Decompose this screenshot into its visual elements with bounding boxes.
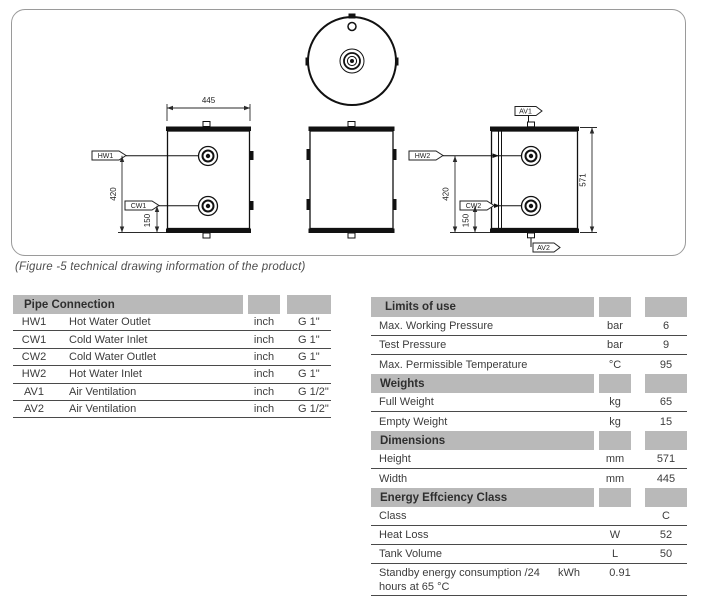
- table-row: Heat Loss W 52: [371, 526, 687, 545]
- value-cell: G 1/2": [287, 403, 331, 415]
- value-cell: 0.91: [599, 566, 641, 580]
- pipe-fitting: [522, 147, 541, 166]
- label-cell: Class: [371, 510, 599, 522]
- value-cell: 571: [645, 453, 687, 465]
- unit-cell: inch: [248, 368, 280, 380]
- table-row: HW1 Hot Water Outlet inch G 1": [13, 314, 331, 331]
- table-row: Max. Permissible Temperature °C 95: [371, 355, 687, 374]
- section-title: Energy Effciency Class: [371, 488, 594, 507]
- pipe-header-unit-cell: [248, 295, 280, 314]
- top-view: [306, 14, 399, 106]
- dim-420-left-label: 420: [109, 187, 118, 201]
- cw2-label: CW2: [466, 203, 482, 210]
- label-cell: Full Weight: [371, 396, 599, 408]
- section-header: Weights: [371, 374, 687, 393]
- value-cell: 15: [645, 416, 687, 428]
- unit-cell: mm: [599, 473, 631, 485]
- desc-cell: Cold Water Outlet: [55, 351, 248, 363]
- table-row: Standby energy consumption /24 hours at …: [371, 564, 687, 596]
- unit-cell: inch: [248, 351, 280, 363]
- table-row: Width mm 445: [371, 469, 687, 488]
- label-cell: Max. Working Pressure: [371, 320, 599, 332]
- header-value-cell: [645, 374, 687, 393]
- unit-cell: kWh: [553, 566, 585, 580]
- desc-cell: Hot Water Outlet: [55, 316, 248, 328]
- table-row: Class C: [371, 507, 687, 526]
- section-header: Dimensions: [371, 431, 687, 450]
- pipe-table-header: Pipe Connection: [13, 295, 331, 314]
- value-cell: G 1": [287, 351, 331, 363]
- dim-420-left: [118, 156, 166, 233]
- unit-cell: °C: [599, 359, 631, 371]
- side-view: [307, 122, 397, 239]
- hw2-label: HW2: [415, 153, 431, 160]
- value-cell: 65: [645, 396, 687, 408]
- pipe-fitting: [522, 197, 541, 216]
- unit-cell: bar: [599, 339, 631, 351]
- unit-cell: inch: [248, 316, 280, 328]
- pipe-fitting: [199, 147, 218, 166]
- cw1-label: CW1: [131, 203, 147, 210]
- limits-of-use-table: Limits of use Max. Working Pressure bar …: [371, 297, 687, 596]
- desc-cell: Air Ventilation: [55, 403, 248, 415]
- code-cell: HW1: [13, 316, 55, 328]
- code-cell: CW2: [13, 351, 55, 363]
- value-cell: G 1": [287, 334, 331, 346]
- unit-cell: bar: [599, 320, 631, 332]
- table-row: Max. Working Pressure bar 6: [371, 317, 687, 336]
- table-row: Empty Weight kg 15: [371, 412, 687, 431]
- value-cell: 9: [645, 339, 687, 351]
- code-cell: CW1: [13, 334, 55, 346]
- label-cell: Test Pressure: [371, 339, 599, 351]
- table-row: Tank Volume L 50: [371, 545, 687, 564]
- unit-cell: inch: [248, 386, 280, 398]
- desc-cell: Hot Water Inlet: [55, 368, 248, 380]
- front-view-right: AV1 AV2 HW2 CW2 420 150: [409, 107, 597, 253]
- unit-cell: W: [599, 529, 631, 541]
- section-header: Limits of use: [371, 297, 687, 317]
- unit-cell: kg: [599, 396, 631, 408]
- unit-cell: inch: [248, 334, 280, 346]
- dim-150-right-label: 150: [462, 213, 471, 227]
- header-unit-cell: [599, 488, 631, 507]
- pipe-table-title: Pipe Connection: [13, 295, 243, 314]
- unit-cell: L: [599, 548, 631, 560]
- code-cell: HW2: [13, 368, 55, 380]
- pipe-connection-table: Pipe Connection HW1 Hot Water Outlet inc…: [13, 295, 331, 418]
- value-cell: 445: [645, 473, 687, 485]
- label-cell: Heat Loss: [371, 529, 599, 541]
- dim-445-label: 445: [202, 96, 216, 105]
- av2-label: AV2: [537, 245, 550, 252]
- header-value-cell: [645, 431, 687, 450]
- label-cell: Width: [371, 473, 599, 485]
- technical-drawing: 445 HW1 CW1 420 150: [0, 0, 706, 280]
- section-title: Weights: [371, 374, 594, 393]
- section-title: Dimensions: [371, 431, 594, 450]
- hw1-label: HW1: [98, 153, 114, 160]
- unit-cell: kg: [599, 416, 631, 428]
- header-value-cell: [645, 488, 687, 507]
- dim-571-label: 571: [579, 173, 588, 187]
- section-title: Limits of use: [371, 297, 594, 317]
- value-cell: 50: [645, 548, 687, 560]
- figure-caption: (Figure -5 technical drawing information…: [15, 261, 306, 273]
- header-unit-cell: [599, 431, 631, 450]
- av1-label: AV1: [519, 109, 532, 116]
- label-cell: Max. Permissible Temperature: [371, 359, 599, 371]
- label-cell: Tank Volume: [371, 548, 599, 560]
- value-cell: G 1": [287, 316, 331, 328]
- header-value-cell: [645, 297, 687, 317]
- pipe-header-value-cell: [287, 295, 331, 314]
- dim-150-left-label: 150: [143, 213, 152, 227]
- label-cell: Empty Weight: [371, 416, 599, 428]
- table-row: CW2 Cold Water Outlet inch G 1": [13, 349, 331, 366]
- label-cell: Height: [371, 453, 599, 465]
- value-cell: C: [645, 510, 687, 522]
- top-fitting: [340, 49, 364, 73]
- table-row: Test Pressure bar 9: [371, 336, 687, 355]
- code-cell: AV1: [13, 386, 55, 398]
- table-row: AV1 Air Ventilation inch G 1/2": [13, 384, 331, 401]
- header-unit-cell: [599, 297, 631, 317]
- desc-cell: Cold Water Inlet: [55, 334, 248, 346]
- dim-445: [167, 104, 250, 121]
- table-row: Full Weight kg 65: [371, 393, 687, 412]
- header-unit-cell: [599, 374, 631, 393]
- label-cell: Standby energy consumption /24 hours at …: [371, 566, 553, 595]
- desc-cell: Air Ventilation: [55, 386, 248, 398]
- value-cell: G 1/2": [287, 386, 331, 398]
- unit-cell: inch: [248, 403, 280, 415]
- table-row: CW1 Cold Water Inlet inch G 1": [13, 331, 331, 348]
- code-cell: AV2: [13, 403, 55, 415]
- pipe-fitting: [199, 197, 218, 216]
- front-view-left: 445 HW1 CW1 420 150: [92, 96, 254, 238]
- value-cell: G 1": [287, 368, 331, 380]
- unit-cell: mm: [599, 453, 631, 465]
- table-row: Height mm 571: [371, 450, 687, 469]
- value-cell: 95: [645, 359, 687, 371]
- table-row: HW2 Hot Water Inlet inch G 1": [13, 366, 331, 383]
- table-row: AV2 Air Ventilation inch G 1/2": [13, 401, 331, 418]
- value-cell: 52: [645, 529, 687, 541]
- dim-420-right-label: 420: [442, 187, 451, 201]
- value-cell: 6: [645, 320, 687, 332]
- section-header: Energy Effciency Class: [371, 488, 687, 507]
